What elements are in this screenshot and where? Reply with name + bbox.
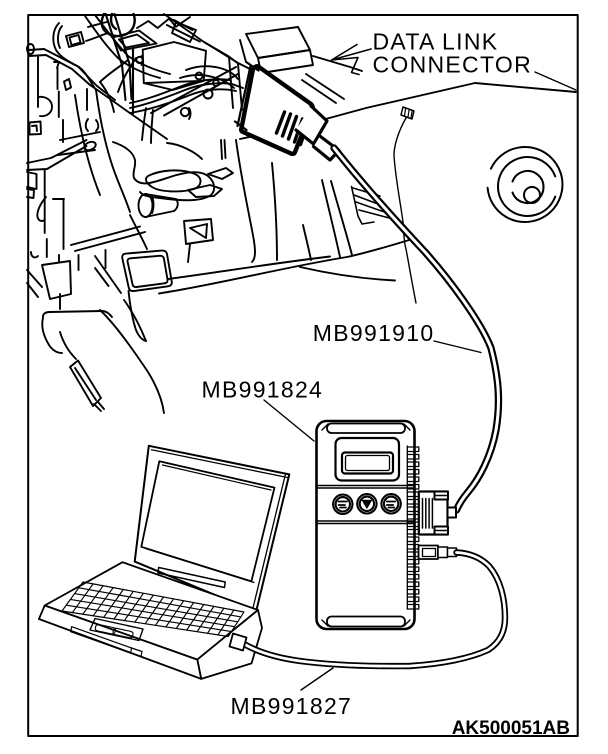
svg-text:CONNECTOR: CONNECTOR	[373, 52, 533, 78]
svg-text:MB991824: MB991824	[202, 377, 324, 403]
svg-text:MB991910: MB991910	[313, 320, 435, 346]
svg-text:AK500051AB: AK500051AB	[452, 718, 570, 739]
svg-text:MB991827: MB991827	[231, 693, 353, 719]
